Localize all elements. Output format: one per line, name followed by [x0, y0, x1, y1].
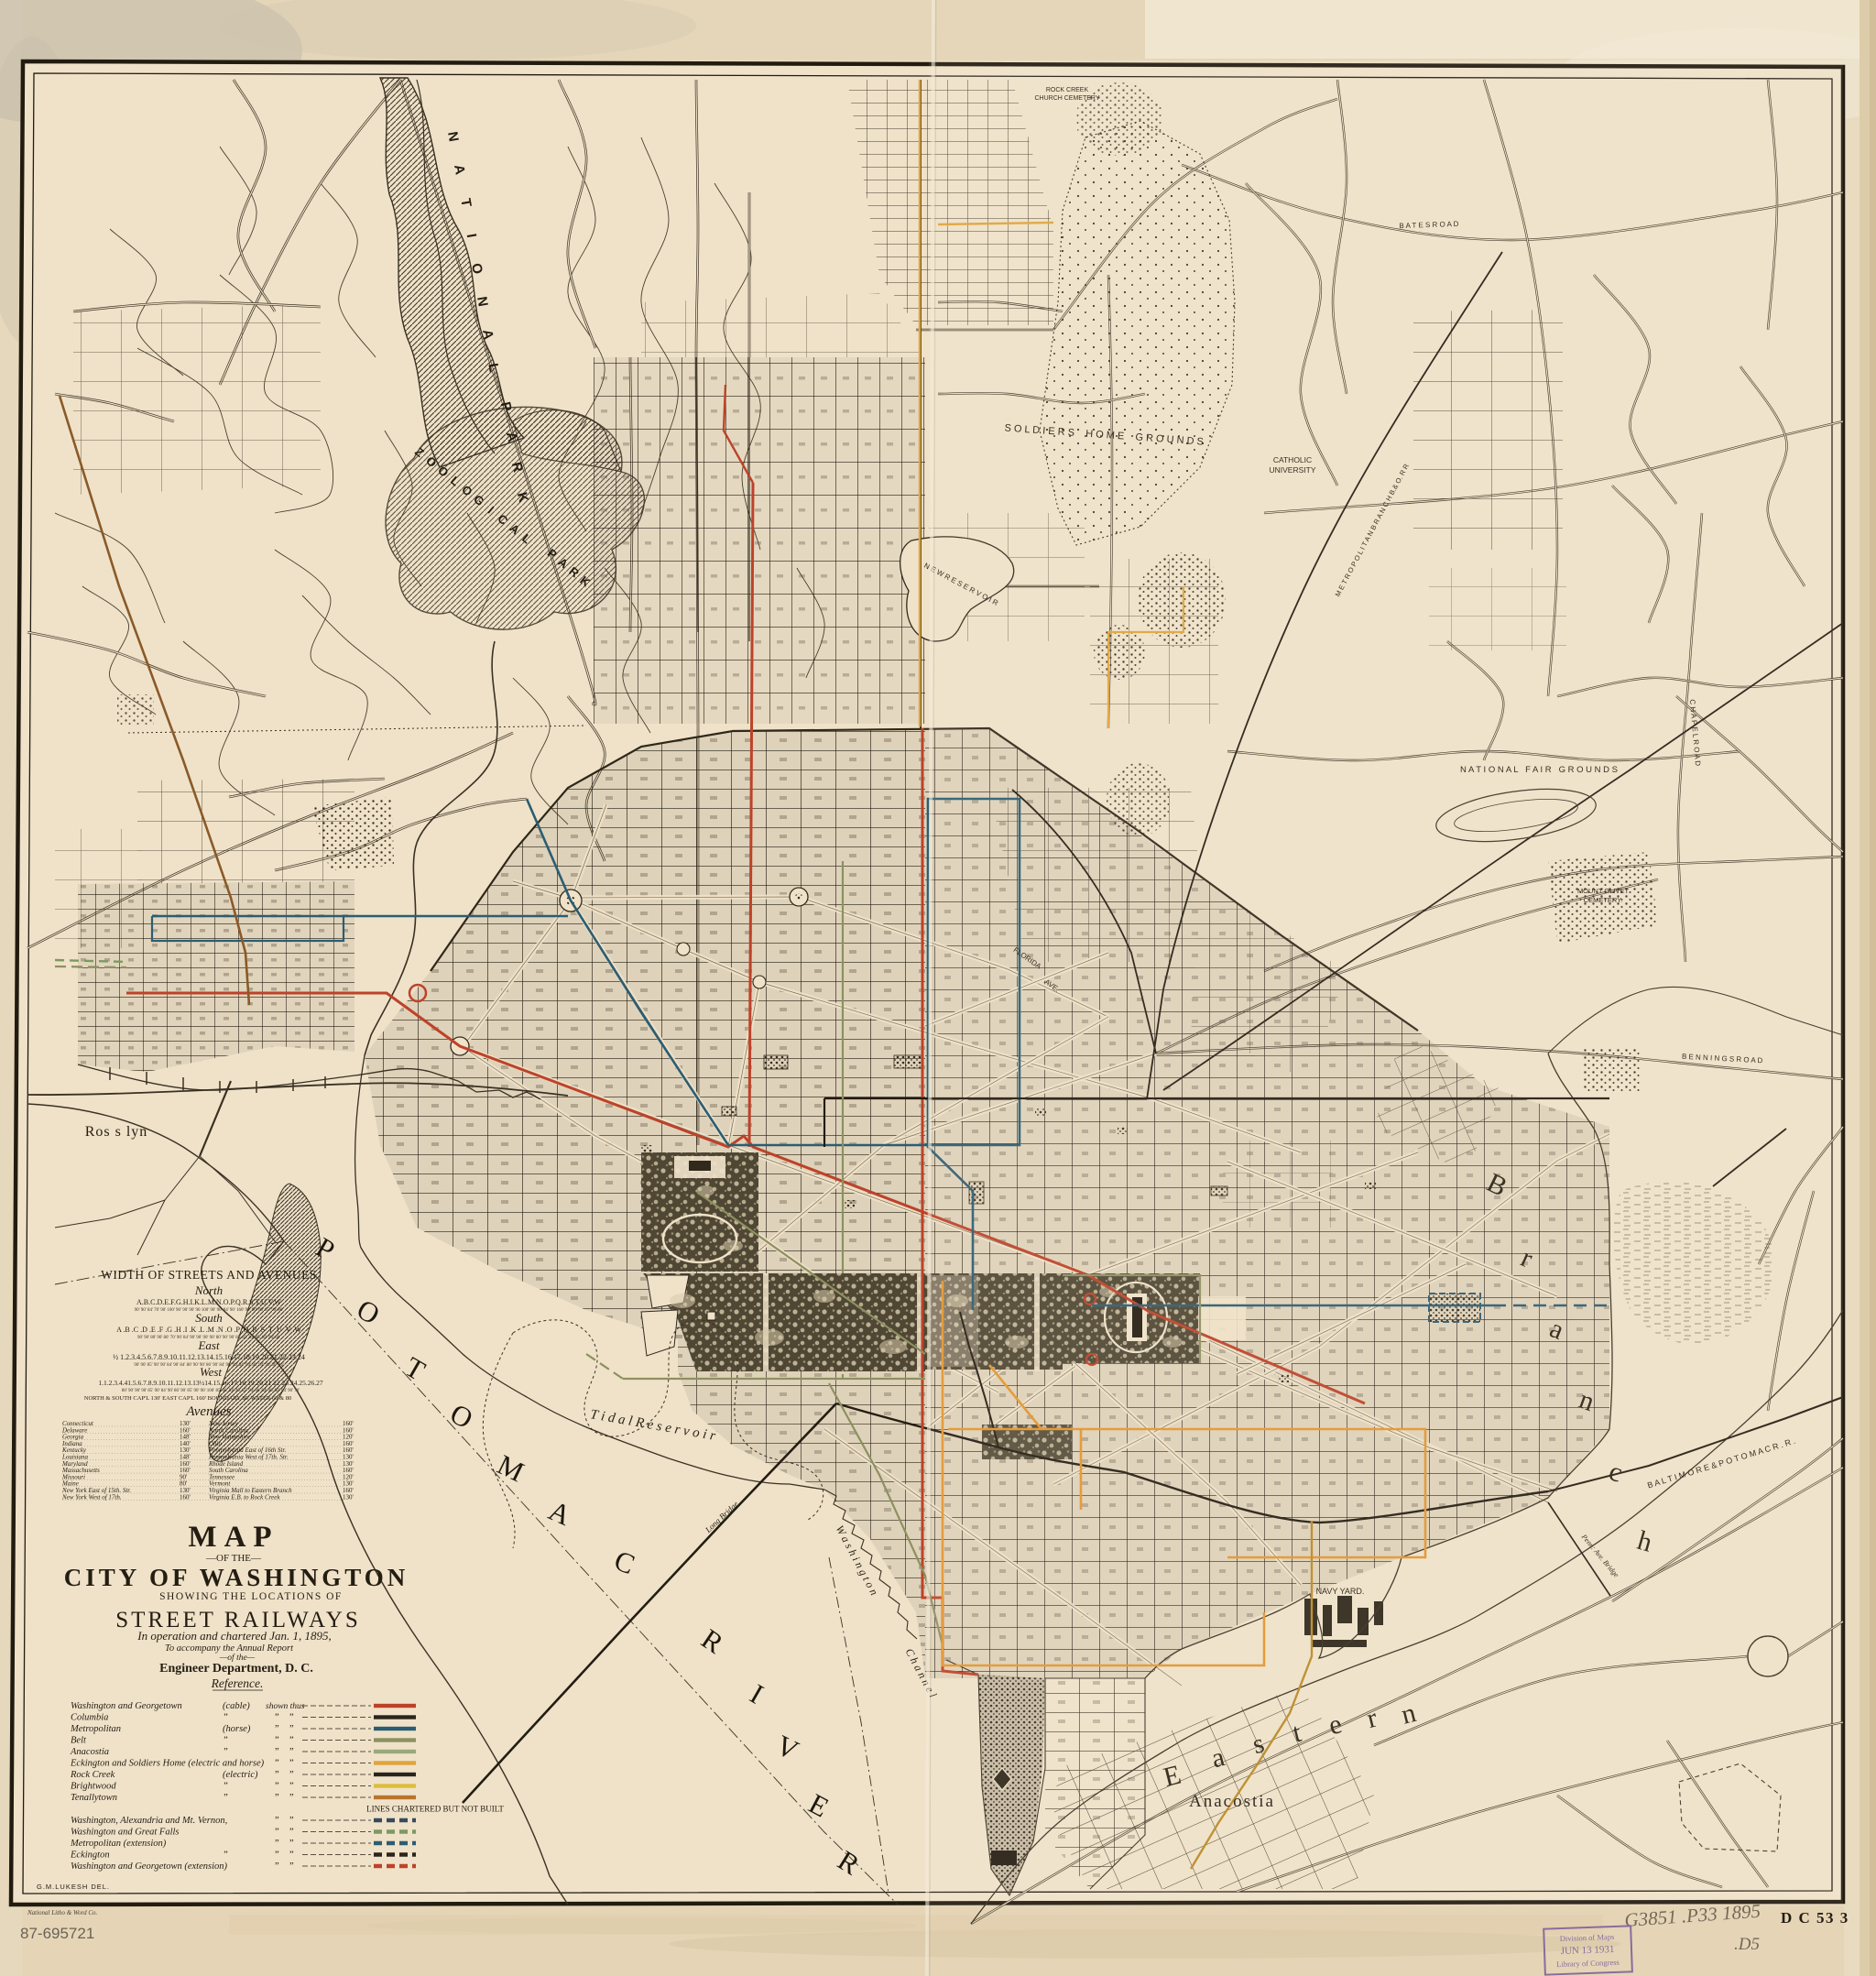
svg-text:130': 130' — [343, 1493, 354, 1501]
svg-text:”: ” — [223, 1736, 228, 1746]
svg-text:Virginia E.B. to Rock Creek: Virginia E.B. to Rock Creek — [209, 1493, 280, 1501]
svg-text:”: ” — [275, 1839, 279, 1849]
svg-text:SHOWING THE LOCATIONS OF: SHOWING THE LOCATIONS OF — [159, 1591, 343, 1602]
svg-text:Engineer Department, D. C.: Engineer Department, D. C. — [159, 1662, 313, 1676]
svg-text:Washington and Georgetown: Washington and Georgetown — [71, 1701, 182, 1711]
svg-text:JUN 13 1931: JUN 13 1931 — [1561, 1944, 1615, 1957]
svg-text:South: South — [195, 1311, 223, 1325]
svg-text:(electric): (electric) — [223, 1770, 258, 1780]
svg-text:”: ” — [275, 1793, 279, 1803]
svg-text:(cable): (cable) — [223, 1701, 250, 1711]
svg-text:Eckington: Eckington — [70, 1850, 110, 1861]
svg-text:”: ” — [289, 1861, 294, 1872]
svg-text:New York West of 17th.: New York West of 17th. — [61, 1493, 122, 1501]
svg-text:National Litho & Word Co.: National Litho & Word Co. — [27, 1909, 98, 1916]
svg-text:”: ” — [289, 1713, 294, 1723]
svg-text:To accompany the Annual Report: To accompany the Annual Report — [165, 1643, 294, 1654]
svg-text:shown thus: shown thus — [266, 1702, 305, 1711]
svg-text:”: ” — [275, 1724, 279, 1734]
svg-text:”: ” — [275, 1770, 279, 1780]
svg-text:Eckington and Soldiers Home (e: Eckington and Soldiers Home (electric an… — [70, 1759, 265, 1769]
svg-text:”: ” — [289, 1816, 294, 1826]
svg-text:Washington and Georgetown (ext: Washington and Georgetown (extension) — [71, 1861, 227, 1872]
svg-text:West: West — [200, 1365, 222, 1379]
svg-text:A.B.C.D.E.F.G.H.I.K.L.M.N.O.P.: A.B.C.D.E.F.G.H.I.K.L.M.N.O.P.Q.R.S.T.U.… — [136, 1298, 281, 1306]
svg-text:160': 160' — [180, 1493, 191, 1501]
svg-text:Division of Maps: Division of Maps — [1560, 1932, 1615, 1943]
svg-text:”: ” — [275, 1828, 279, 1838]
svg-text:Metropolitan (extension): Metropolitan (extension) — [70, 1839, 167, 1849]
svg-text:”: ” — [289, 1839, 294, 1849]
svg-text:”: ” — [289, 1793, 294, 1803]
svg-text:Tenallytown: Tenallytown — [71, 1793, 117, 1803]
svg-text:WIDTH OF STREETS AND AVENUES: WIDTH OF STREETS AND AVENUES — [101, 1268, 317, 1282]
svg-text:”: ” — [275, 1850, 279, 1861]
svg-text:Washington and Great Falls: Washington and Great Falls — [71, 1828, 180, 1838]
svg-text:”: ” — [289, 1724, 294, 1734]
svg-text:”: ” — [223, 1782, 228, 1792]
svg-text:A .B .C .D .E .F .G .H .I .K .: A .B .C .D .E .F .G .H .I .K .L .M .N .O… — [116, 1326, 301, 1334]
svg-text:80' 90' 90' 90' 85' 90' 84' 90: 80' 90' 90' 90' 85' 90' 84' 90' 86' 90' … — [122, 1389, 300, 1393]
svg-text:Ros s lyn: Ros s lyn — [85, 1124, 148, 1140]
svg-text:—OF THE—: —OF THE— — [205, 1553, 262, 1564]
svg-text:G.M.LUKESH DEL.: G.M.LUKESH DEL. — [37, 1883, 110, 1891]
svg-text:NORTH & SOUTH CAP'L 130' EAST: NORTH & SOUTH CAP'L 130' EAST CAP'L 160'… — [84, 1395, 291, 1402]
svg-text:MAP: MAP — [188, 1521, 278, 1554]
svg-text:87-695721: 87-695721 — [20, 1925, 94, 1942]
svg-text:(horse): (horse) — [223, 1724, 251, 1734]
svg-text:”: ” — [275, 1747, 279, 1757]
svg-text:D C 53 3: D C 53 3 — [1781, 1909, 1849, 1927]
svg-text:”: ” — [223, 1793, 228, 1803]
svg-text:½ 1.2.3.4.5.6.7.8.9.10.11.12.1: ½ 1.2.3.4.5.6.7.8.9.10.11.12.13.14.15.16… — [113, 1353, 305, 1361]
svg-text:Belt: Belt — [71, 1736, 87, 1746]
svg-text:”: ” — [289, 1770, 294, 1780]
svg-text:”: ” — [289, 1850, 294, 1861]
svg-text:Anacostia: Anacostia — [70, 1747, 109, 1757]
svg-text:”: ” — [223, 1713, 228, 1723]
svg-text:”: ” — [289, 1782, 294, 1792]
svg-text:LINES CHARTERED BUT NOT BUILT: LINES CHARTERED BUT NOT BUILT — [366, 1805, 504, 1814]
svg-text:1.1.2.3.4.41.5.6.7.8.9.10.11.1: 1.1.2.3.4.41.5.6.7.8.9.10.11.12.13.13½14… — [98, 1379, 323, 1387]
svg-text:”: ” — [289, 1736, 294, 1746]
svg-text:Columbia: Columbia — [71, 1713, 108, 1723]
svg-text:”: ” — [223, 1850, 228, 1861]
svg-text:”: ” — [275, 1713, 279, 1723]
svg-text:Brightwood: Brightwood — [71, 1782, 116, 1792]
svg-text:In operation and chartered Jan: In operation and chartered Jan. 1, 1895, — [136, 1629, 331, 1643]
svg-text:East: East — [197, 1338, 220, 1352]
svg-text:”: ” — [275, 1759, 279, 1769]
svg-text:Rock Creek: Rock Creek — [70, 1770, 115, 1780]
svg-text:”: ” — [289, 1759, 294, 1769]
svg-text:Metropolitan: Metropolitan — [70, 1724, 121, 1734]
svg-text:”: ” — [275, 1861, 279, 1872]
svg-text:.D5: .D5 — [1734, 1935, 1760, 1954]
svg-text:”: ” — [223, 1747, 228, 1757]
svg-text:CITY OF WASHINGTON: CITY OF WASHINGTON — [64, 1564, 409, 1591]
svg-text:”: ” — [275, 1782, 279, 1792]
svg-text:Washington, Alexandria and Mt.: Washington, Alexandria and Mt. Vernon, — [71, 1816, 227, 1826]
svg-text:”: ” — [289, 1747, 294, 1757]
svg-text:Avenues: Avenues — [185, 1404, 231, 1419]
svg-text:Reference.: Reference. — [211, 1676, 264, 1690]
svg-text:”: ” — [275, 1736, 279, 1746]
svg-text:”: ” — [289, 1828, 294, 1838]
svg-text:”: ” — [275, 1816, 279, 1826]
svg-text:North: North — [194, 1283, 223, 1297]
